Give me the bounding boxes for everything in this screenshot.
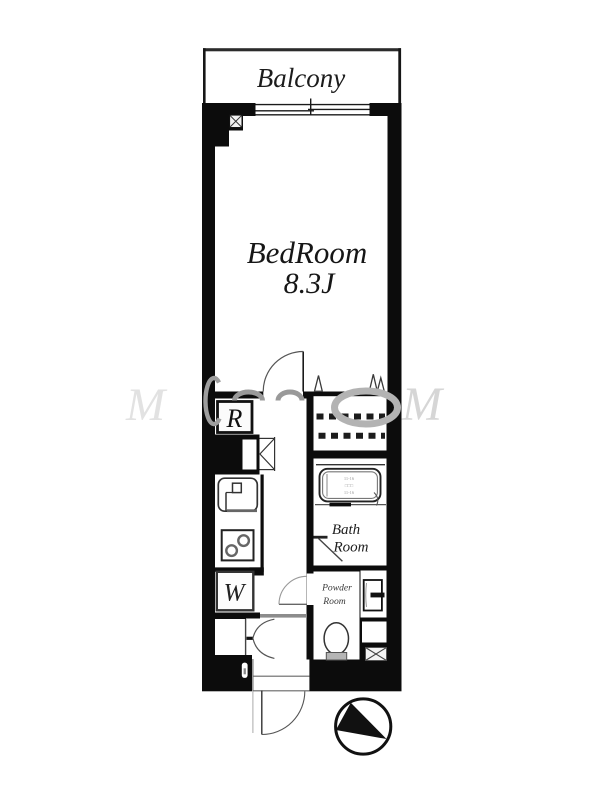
svg-text:Powder: Powder [321,583,352,594]
svg-text:Room: Room [322,596,345,607]
svg-text:8.3J: 8.3J [284,267,337,300]
svg-text:11-16: 11-16 [344,490,355,495]
svg-text:M: M [401,378,445,431]
svg-text:R: R [226,404,243,433]
svg-text:M: M [125,379,168,431]
svg-text:Room: Room [333,540,369,556]
svg-text:11-16: 11-16 [344,476,355,481]
svg-text:□□□: □□□ [345,483,353,488]
svg-text:W: W [224,580,247,607]
svg-text:Balcony: Balcony [257,63,345,93]
svg-text:Bath: Bath [332,522,360,538]
svg-text:BedRoom: BedRoom [247,235,368,270]
